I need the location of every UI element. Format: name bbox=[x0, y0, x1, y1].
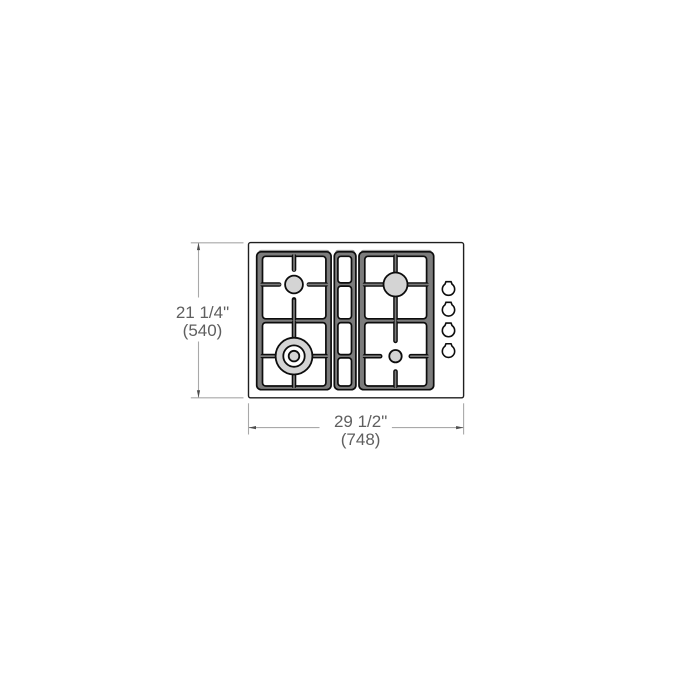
svg-text:(540): (540) bbox=[183, 321, 223, 340]
svg-text:(748): (748) bbox=[341, 430, 381, 449]
svg-text:21 1/4": 21 1/4" bbox=[176, 303, 229, 322]
svg-text:29 1/2": 29 1/2" bbox=[334, 412, 387, 431]
